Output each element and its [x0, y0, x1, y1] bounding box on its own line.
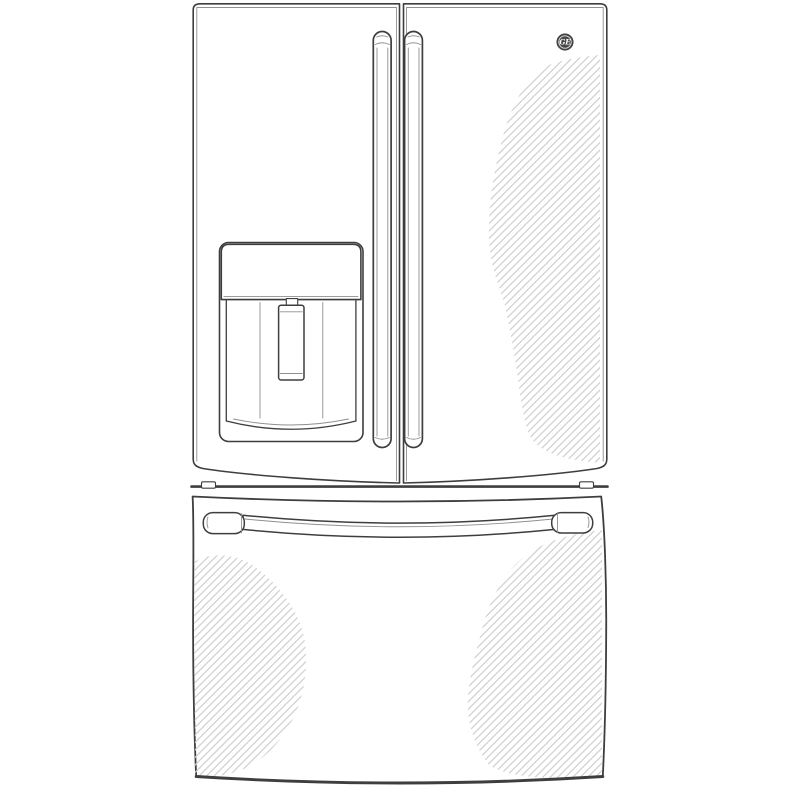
left-hinge-foot	[202, 482, 216, 488]
dispenser-control-panel	[221, 244, 361, 299]
dispenser-paddle	[279, 305, 304, 380]
door-section: GE	[193, 4, 607, 483]
right-hinge-foot	[580, 482, 594, 488]
freezer-drawer	[193, 497, 607, 784]
left-door-handle-bar	[373, 32, 391, 448]
refrigerator-line-drawing: GE	[0, 0, 800, 800]
ge-monogram-text: GE	[559, 38, 571, 47]
drawer-handle-left-endcap	[203, 513, 244, 534]
right-door-handle-bar	[405, 32, 423, 448]
right-door-handle	[405, 32, 423, 448]
ice-water-dispenser	[220, 243, 364, 442]
product-image-canvas: GE	[0, 0, 800, 800]
left-door-handle	[373, 32, 391, 448]
ge-logo-badge: GE	[557, 34, 573, 50]
